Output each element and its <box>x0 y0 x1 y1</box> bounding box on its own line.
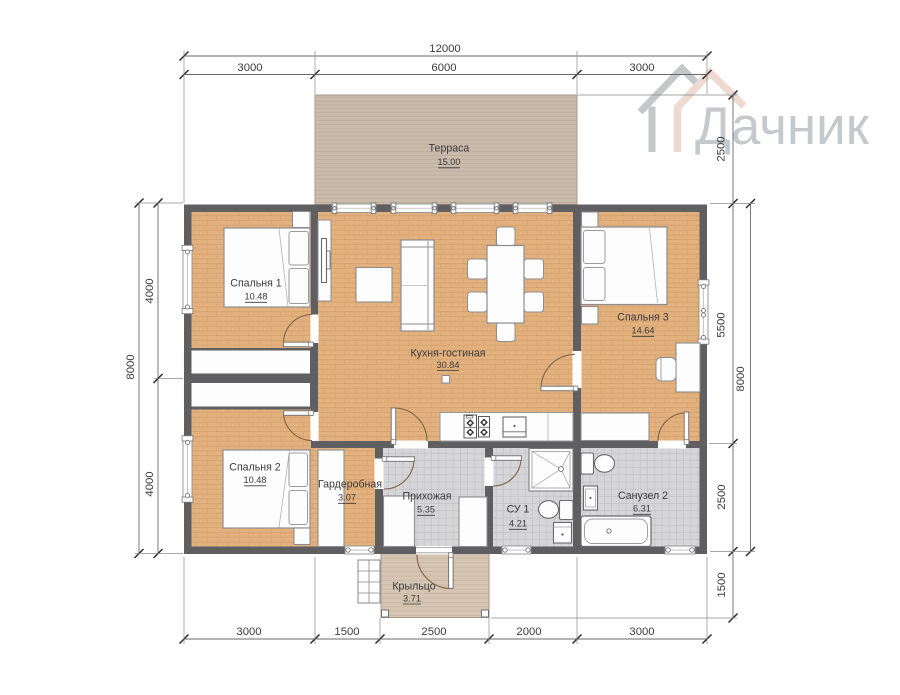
svg-text:Гардеробная: Гардеробная <box>318 479 382 491</box>
svg-text:3000: 3000 <box>629 62 654 74</box>
svg-text:8000: 8000 <box>125 354 137 379</box>
svg-text:Санузел 2: Санузел 2 <box>618 490 668 502</box>
svg-text:2500: 2500 <box>716 136 728 161</box>
svg-text:Кухня-гостиная: Кухня-гостиная <box>411 348 486 360</box>
svg-text:3.07: 3.07 <box>338 493 356 503</box>
svg-text:8000: 8000 <box>735 366 747 391</box>
svg-text:СУ 1: СУ 1 <box>507 504 530 516</box>
svg-text:Спальня 3: Спальня 3 <box>617 312 669 324</box>
svg-text:Спальня 2: Спальня 2 <box>229 462 281 474</box>
svg-text:1500: 1500 <box>334 626 359 638</box>
svg-text:2500: 2500 <box>421 626 446 638</box>
svg-text:14.64: 14.64 <box>632 326 655 336</box>
svg-text:10.48: 10.48 <box>245 292 268 302</box>
svg-text:4000: 4000 <box>144 471 156 496</box>
svg-text:5.35: 5.35 <box>417 505 435 515</box>
svg-text:3000: 3000 <box>237 62 262 74</box>
svg-text:2500: 2500 <box>716 484 728 509</box>
svg-text:2000: 2000 <box>516 626 541 638</box>
svg-text:3000: 3000 <box>629 626 654 638</box>
svg-text:Терраса: Терраса <box>429 143 470 155</box>
svg-text:Прихожая: Прихожая <box>402 491 451 503</box>
svg-text:3.71: 3.71 <box>403 594 421 604</box>
svg-text:5500: 5500 <box>716 312 728 337</box>
svg-text:4.21: 4.21 <box>509 519 527 529</box>
svg-text:6.31: 6.31 <box>633 504 651 514</box>
svg-text:Спальня 1: Спальня 1 <box>230 278 282 290</box>
svg-text:10.48: 10.48 <box>244 475 267 485</box>
svg-text:30.84: 30.84 <box>437 360 460 370</box>
svg-text:1500: 1500 <box>716 572 728 597</box>
svg-text:15.00: 15.00 <box>438 157 461 167</box>
svg-text:6000: 6000 <box>431 62 456 74</box>
svg-text:4000: 4000 <box>144 278 156 303</box>
svg-text:Крыльцо: Крыльцо <box>392 581 435 593</box>
svg-text:3000: 3000 <box>236 626 261 638</box>
svg-text:12000: 12000 <box>429 43 460 55</box>
